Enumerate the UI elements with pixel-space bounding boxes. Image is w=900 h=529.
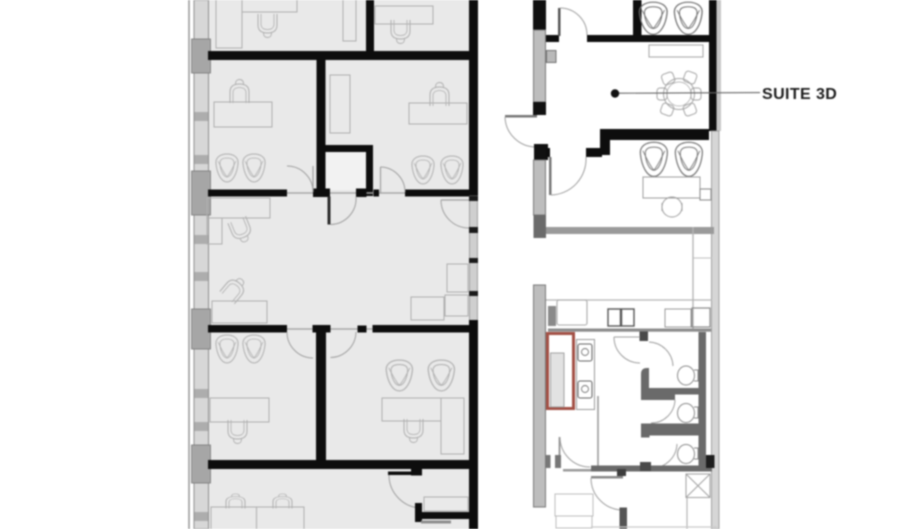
svg-text:SUITE 3D: SUITE 3D: [762, 86, 837, 103]
